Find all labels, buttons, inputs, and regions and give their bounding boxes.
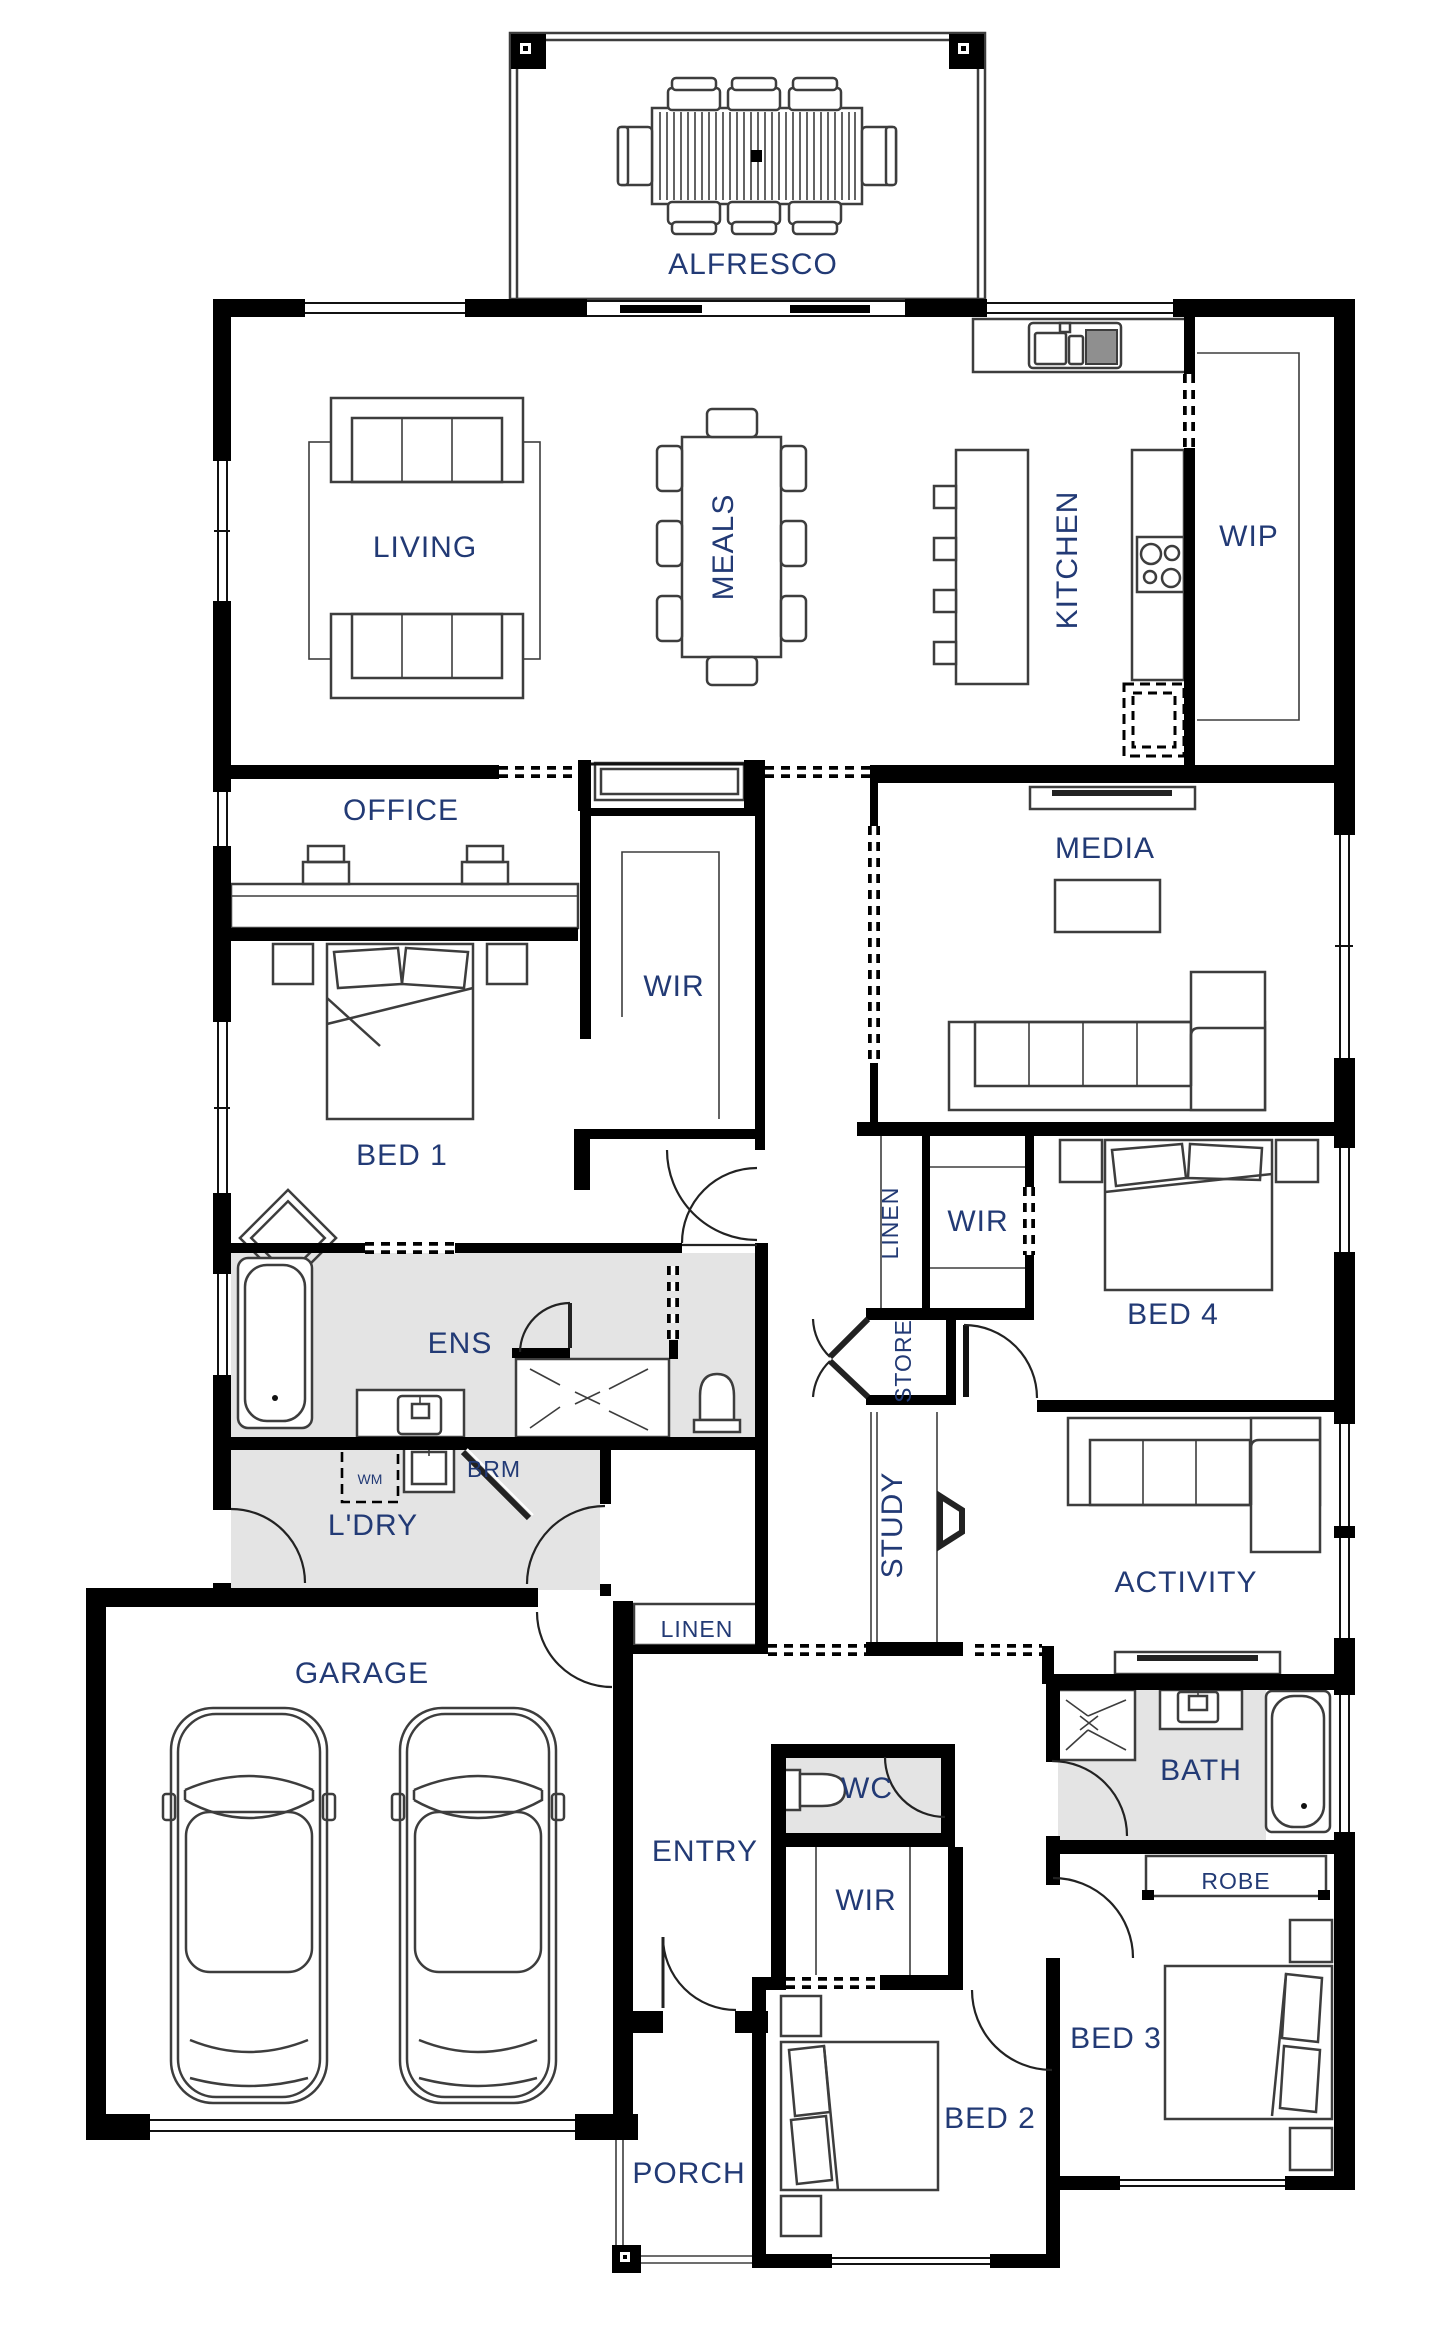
svg-text:LINEN: LINEN	[661, 1616, 734, 1642]
svg-text:WIR: WIR	[835, 1884, 896, 1917]
svg-text:OFFICE: OFFICE	[343, 794, 459, 827]
svg-text:PORCH: PORCH	[632, 2157, 745, 2190]
svg-text:WIP: WIP	[1219, 520, 1279, 553]
svg-text:L'DRY: L'DRY	[328, 1509, 418, 1542]
svg-text:LIVING: LIVING	[373, 531, 477, 564]
svg-text:BRM: BRM	[467, 1456, 521, 1482]
svg-text:BED 1: BED 1	[356, 1139, 448, 1172]
svg-text:STORE: STORE	[890, 1319, 916, 1403]
svg-text:KITCHEN: KITCHEN	[1051, 491, 1084, 630]
svg-text:WC: WC	[841, 1772, 893, 1805]
svg-text:MEALS: MEALS	[707, 494, 740, 601]
svg-text:STUDY: STUDY	[876, 1472, 909, 1579]
svg-text:WIR: WIR	[643, 970, 704, 1003]
svg-text:WM: WM	[358, 1471, 383, 1487]
svg-text:ROBE: ROBE	[1201, 1868, 1270, 1894]
svg-text:BED 4: BED 4	[1127, 1298, 1219, 1331]
svg-text:ENTRY: ENTRY	[652, 1835, 758, 1868]
svg-text:BATH: BATH	[1160, 1754, 1242, 1787]
svg-text:ACTIVITY: ACTIVITY	[1114, 1566, 1257, 1599]
svg-text:ALFRESCO: ALFRESCO	[668, 248, 838, 281]
svg-text:ENS: ENS	[428, 1327, 493, 1360]
svg-text:GARAGE: GARAGE	[295, 1657, 429, 1690]
svg-text:BED 2: BED 2	[944, 2102, 1036, 2135]
svg-text:MEDIA: MEDIA	[1055, 832, 1155, 865]
svg-text:BED 3: BED 3	[1070, 2022, 1162, 2055]
svg-text:WIR: WIR	[947, 1205, 1008, 1238]
svg-text:LINEN: LINEN	[877, 1187, 903, 1260]
